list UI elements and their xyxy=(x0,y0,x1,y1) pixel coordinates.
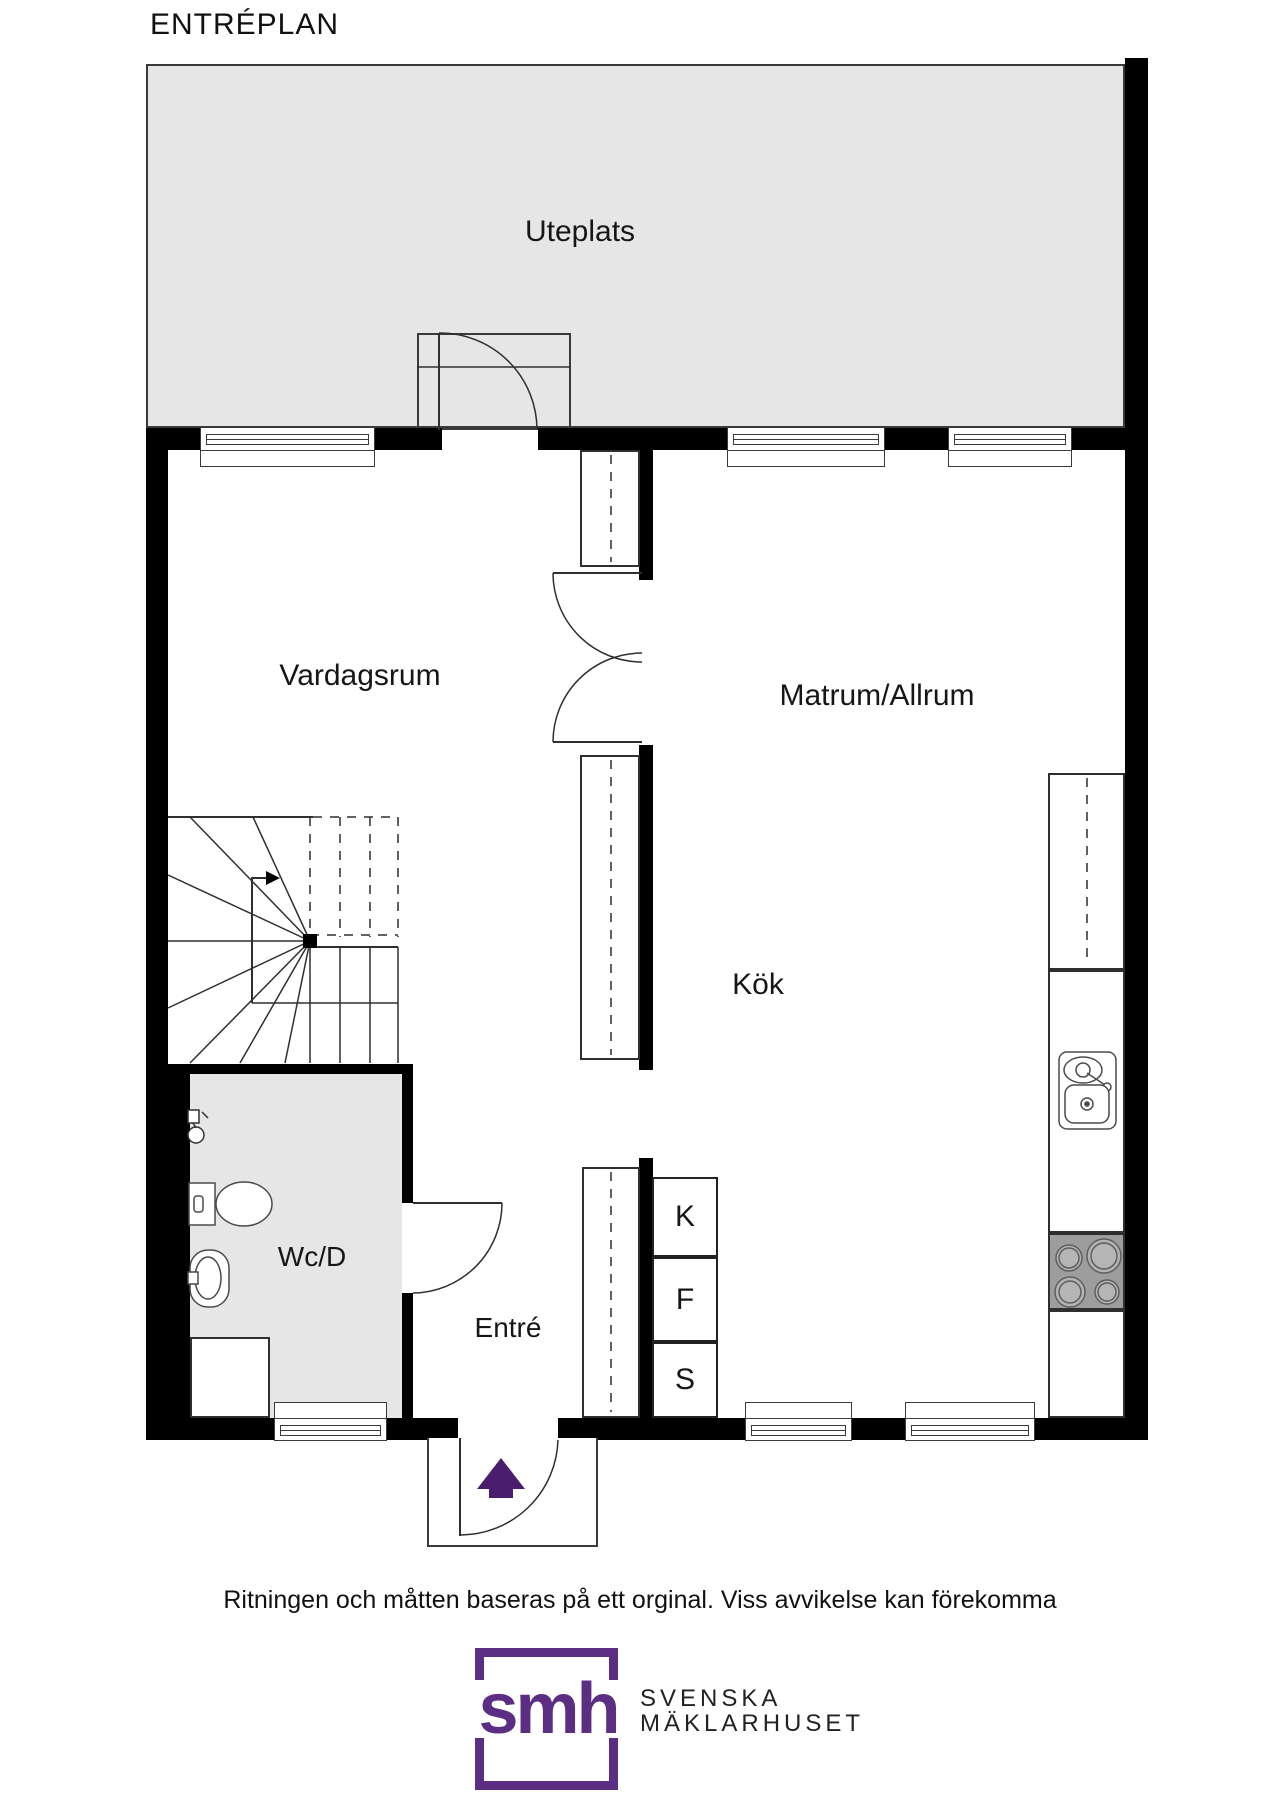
smh-logo-monogram: smh xyxy=(466,1680,630,1738)
floorplan-canvas: ENTRÉPLAN xyxy=(0,0,1280,1810)
label-uteplats: Uteplats xyxy=(525,215,635,249)
smh-logo-line2: MÄKLARHUSET xyxy=(640,1711,864,1736)
smh-logo-wordmark: SVENSKA MÄKLARHUSET xyxy=(640,1686,864,1736)
hand-sink-icon xyxy=(188,1250,229,1307)
plan-vector-overlay xyxy=(0,0,1280,1810)
stove-burners-icon xyxy=(1055,1239,1121,1307)
double-door-icon xyxy=(553,573,642,742)
label-matrum: Matrum/Allrum xyxy=(779,679,974,713)
shower-icon xyxy=(188,1110,208,1143)
smh-logo-line1: SVENSKA xyxy=(640,1686,864,1711)
kitchen-sink-icon xyxy=(1059,1052,1116,1129)
label-wcd: Wc/D xyxy=(278,1241,346,1273)
cupboard-dash-lines xyxy=(611,455,1087,1412)
label-kok: Kök xyxy=(732,968,784,1002)
label-entre: Entré xyxy=(475,1312,542,1344)
label-vardagsrum: Vardagsrum xyxy=(279,659,440,693)
toilet-icon xyxy=(189,1182,272,1226)
disclaimer-text: Ritningen och måtten baseras på ett orgi… xyxy=(0,1586,1280,1615)
wcd-door-icon xyxy=(413,1203,502,1293)
stairs-icon xyxy=(168,817,398,1063)
patio-door-icon xyxy=(417,333,571,430)
entrance-arrow-icon xyxy=(477,1458,525,1498)
